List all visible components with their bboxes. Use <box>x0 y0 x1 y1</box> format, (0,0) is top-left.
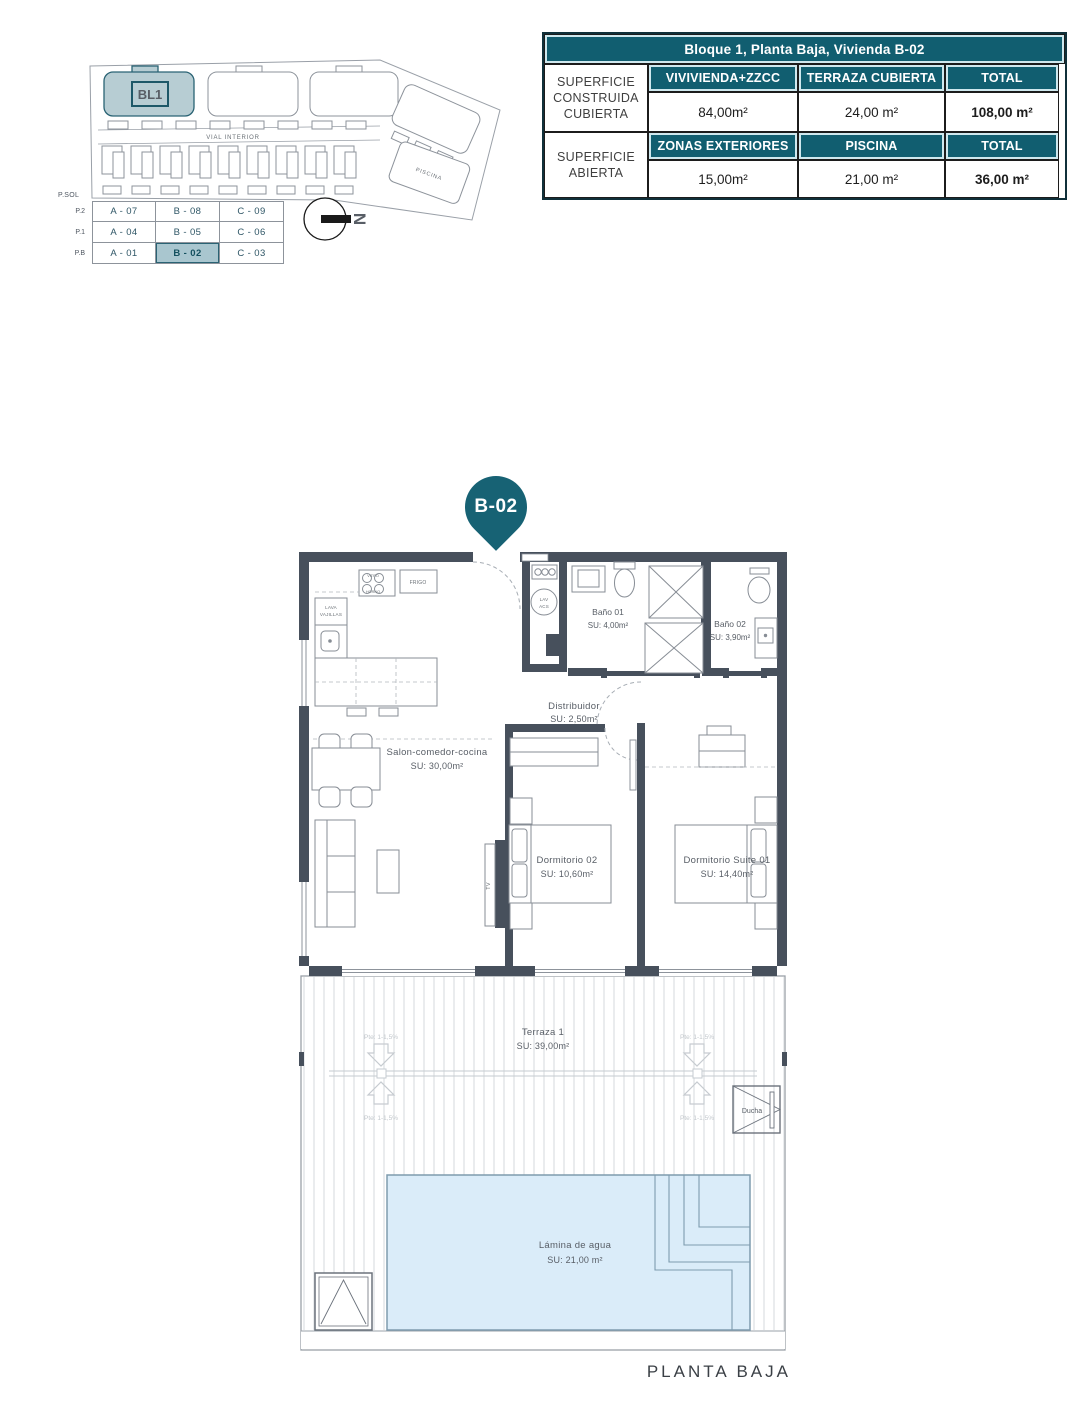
surface-table-title: Bloque 1, Planta Baja, Vivienda B-02 <box>544 34 1065 64</box>
slope-label: Pte: 1-1,5% <box>680 1034 714 1041</box>
row-label-construida: SUPERFICIE CONSTRUIDA CUBIERTA <box>544 64 648 132</box>
compass-needle <box>321 215 351 223</box>
vitro-label: VITRO <box>367 574 379 578</box>
nightstand <box>755 797 777 823</box>
living-room <box>312 734 495 927</box>
door-leaf <box>630 740 636 790</box>
matrix-cell: B - 08 <box>156 201 220 222</box>
col-header: TOTAL <box>945 132 1059 160</box>
bl1-label: BL1 <box>138 87 163 102</box>
col-header: ZONAS EXTERIORES <box>648 132 798 160</box>
frigo-label: FRIGO <box>410 580 427 586</box>
surface-table: Bloque 1, Planta Baja, Vivienda B-02 SUP… <box>542 32 1067 200</box>
unit-pin: B-02 <box>452 463 540 551</box>
toilet-tank <box>750 568 769 574</box>
building-bl3 <box>310 66 398 116</box>
chair <box>319 787 340 807</box>
bedroom-suite <box>675 726 777 929</box>
value-piscina: 21,00 m² <box>798 160 945 198</box>
matrix-cell: C - 03 <box>220 243 284 264</box>
pool: Lámina de agua SU: 21,00 m² <box>387 1175 750 1330</box>
dorm2-name: Dormitorio 02 <box>537 855 598 866</box>
col-header: VIVIVIENDA+ZZCC <box>648 64 798 92</box>
terrace: Pte: 1-1,5% Pte: 1-1,5% Pte: 1-1,5% Pte:… <box>299 976 787 1350</box>
level-label-p2: P.2 <box>58 201 92 222</box>
unit-pin-label: B-02 <box>465 476 527 538</box>
level-label-p1: P.1 <box>58 222 92 243</box>
building-bl1-highlighted: BL1 <box>104 66 194 116</box>
north-compass: N <box>294 188 386 252</box>
value-zonas-exteriores: 15,00m² <box>648 160 798 198</box>
chair <box>351 787 372 807</box>
matrix-cell: A - 04 <box>92 222 156 243</box>
acs-label: ACS <box>539 604 549 609</box>
value-total-cubierta: 108,00 m² <box>945 92 1059 132</box>
washing-machine <box>531 589 557 615</box>
suite-su: SU: 14,40m² <box>701 869 754 879</box>
pool-su: SU: 21,00 m² <box>547 1255 602 1265</box>
value-terraza-cubierta: 24,00 m² <box>798 92 945 132</box>
plan-caption: PLANTA BAJA <box>299 1362 793 1382</box>
terrace-hatch <box>315 1273 372 1330</box>
unit-matrix: P.SOL P.2 A - 07 B - 08 C - 09 P.1 A - 0… <box>58 192 284 264</box>
floor-plan: B-02 <box>299 460 791 1420</box>
row-label-abierta: SUPERFICIE ABIERTA <box>544 132 648 198</box>
slope-label: Pte: 1-1,5% <box>364 1115 398 1122</box>
matrix-cell: B - 05 <box>156 222 220 243</box>
terraza-name: Terraza 1 <box>522 1027 564 1038</box>
salon-name: Salon-comedor-cocina <box>386 747 487 758</box>
pillow <box>512 864 527 897</box>
desk-box <box>707 726 731 735</box>
slope-label: Pte: 1-1,5% <box>364 1034 398 1041</box>
pool-name: Lámina de agua <box>539 1240 612 1251</box>
dorm2-su: SU: 10,60m² <box>541 869 594 879</box>
matrix-cell-b02-highlighted: B - 02 <box>156 243 220 264</box>
pillow <box>512 829 527 862</box>
toilet-tank <box>614 562 635 569</box>
vial-interior-label: VIAL INTERIOR <box>206 135 260 141</box>
col-header: PISCINA <box>798 132 945 160</box>
salon-su: SU: 30,00m² <box>411 761 464 771</box>
bano2-name: Baño 02 <box>714 619 746 629</box>
nightstand <box>755 903 777 929</box>
stool <box>347 708 366 716</box>
value-vivienda: 84,00m² <box>648 92 798 132</box>
nightstand <box>510 798 532 824</box>
matrix-cell: A - 07 <box>92 201 156 222</box>
north-label: N <box>350 213 369 225</box>
toilet <box>615 569 635 597</box>
slope-label: Pte: 1-1,5% <box>680 1115 714 1122</box>
sofa <box>315 820 355 927</box>
distribuidor-su: SU: 2,50m² <box>550 714 598 724</box>
kitchen-island <box>315 658 437 706</box>
bano1-name: Baño 01 <box>592 607 624 617</box>
lava-label: LAVA <box>325 605 338 610</box>
building-bl2 <box>208 66 298 116</box>
col-header: TERRAZA CUBIERTA <box>798 64 945 92</box>
horno-label: HORNO <box>366 590 380 594</box>
matrix-cell: C - 06 <box>220 222 284 243</box>
lav-label: LAV <box>540 597 549 602</box>
dining-table <box>312 748 380 790</box>
ducha-label: Ducha <box>742 1108 762 1115</box>
col-header: TOTAL <box>945 64 1059 92</box>
value-total-abierta: 36,00 m² <box>945 160 1059 198</box>
vajillas-label: VAJILLAS <box>320 612 342 617</box>
bedroom-2 <box>509 738 611 929</box>
bano1-su: SU: 4,00m² <box>588 621 629 630</box>
toilet <box>748 577 770 603</box>
stool <box>379 708 398 716</box>
bano2-su: SU: 3,90m² <box>710 633 751 642</box>
unit-matrix-header: P.SOL <box>58 192 284 199</box>
level-label-pb: P.B <box>58 243 92 264</box>
tv-label: TV <box>486 882 492 890</box>
nightstand <box>510 903 532 929</box>
suite-name: Dormitorio Suite 01 <box>683 855 770 866</box>
matrix-cell: C - 09 <box>220 201 284 222</box>
coffee-table <box>377 850 399 893</box>
floor-plan-drawing: Pte: 1-1,5% Pte: 1-1,5% Pte: 1-1,5% Pte:… <box>299 552 791 1358</box>
bathroom-1 <box>572 562 703 673</box>
terraza-su: SU: 39,00m² <box>517 1041 570 1051</box>
matrix-cell: A - 01 <box>92 243 156 264</box>
houses-row <box>102 146 356 178</box>
distribuidor-name: Distribuidor <box>548 701 600 712</box>
bathroom-2 <box>748 568 777 658</box>
